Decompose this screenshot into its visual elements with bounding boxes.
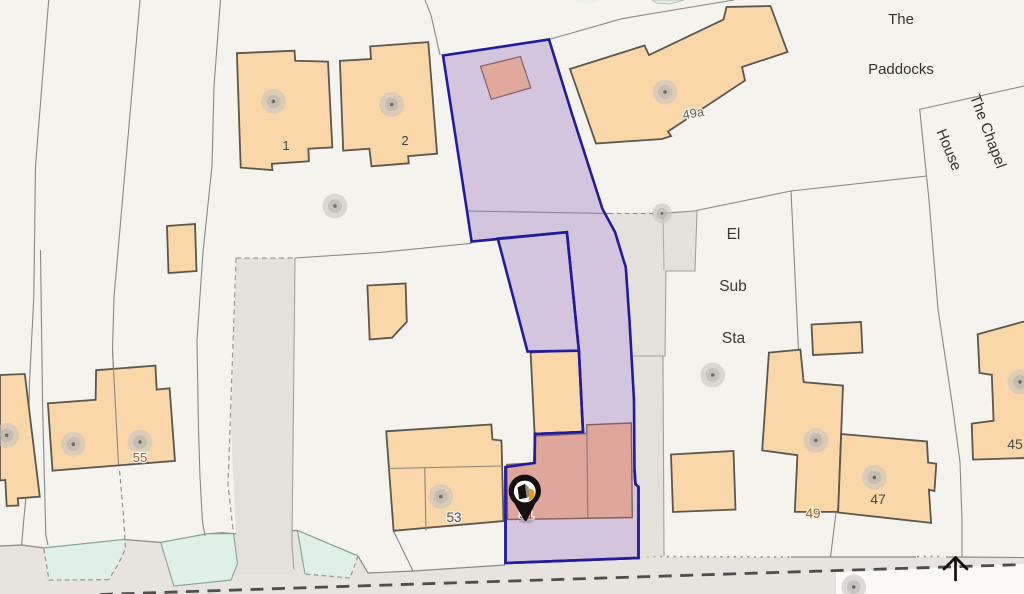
svg-text:49: 49: [805, 506, 820, 521]
svg-text:55: 55: [133, 450, 147, 465]
svg-text:47: 47: [870, 491, 886, 507]
svg-text:53: 53: [446, 510, 461, 525]
svg-text:Sub: Sub: [719, 278, 747, 295]
svg-text:45: 45: [1007, 436, 1023, 452]
svg-text:El: El: [727, 226, 741, 243]
svg-text:Sta: Sta: [722, 330, 746, 347]
svg-text:Paddocks: Paddocks: [868, 61, 934, 78]
svg-text:2: 2: [401, 133, 408, 148]
svg-text:1: 1: [282, 138, 289, 153]
svg-text:The: The: [888, 11, 914, 28]
